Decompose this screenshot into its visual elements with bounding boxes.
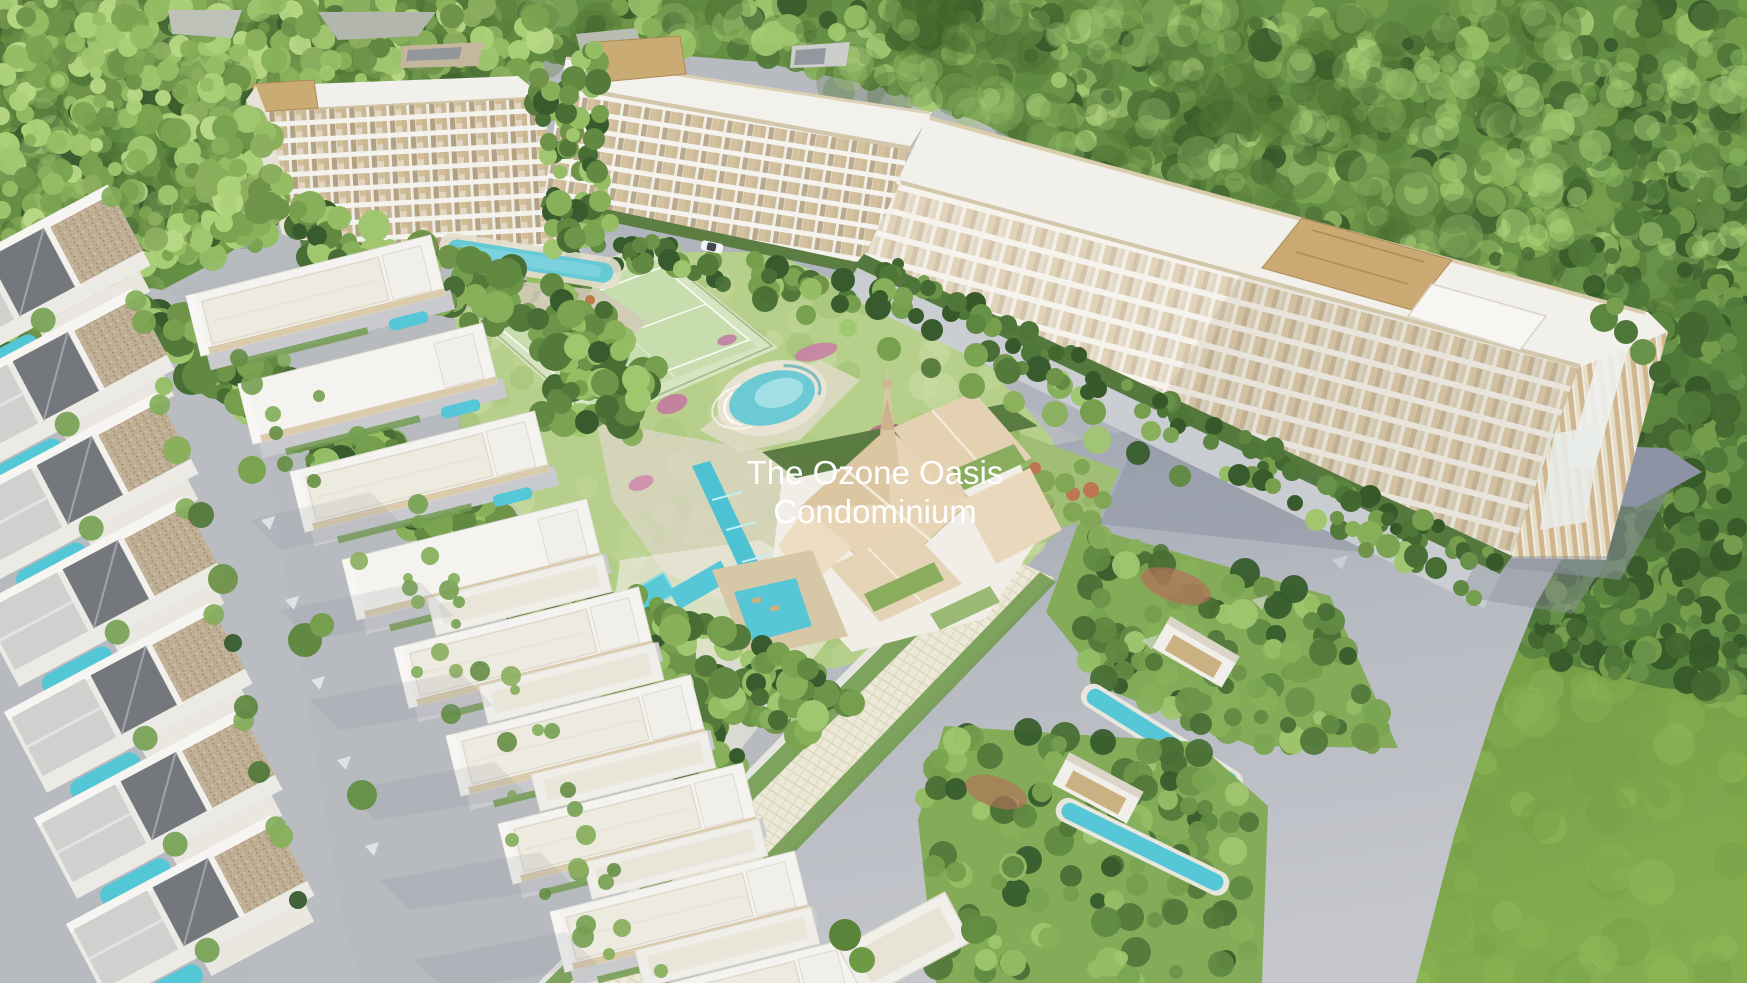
svg-text:Condominium: Condominium	[773, 493, 977, 530]
svg-text:The Ozone Oasis: The Ozone Oasis	[747, 454, 1004, 491]
